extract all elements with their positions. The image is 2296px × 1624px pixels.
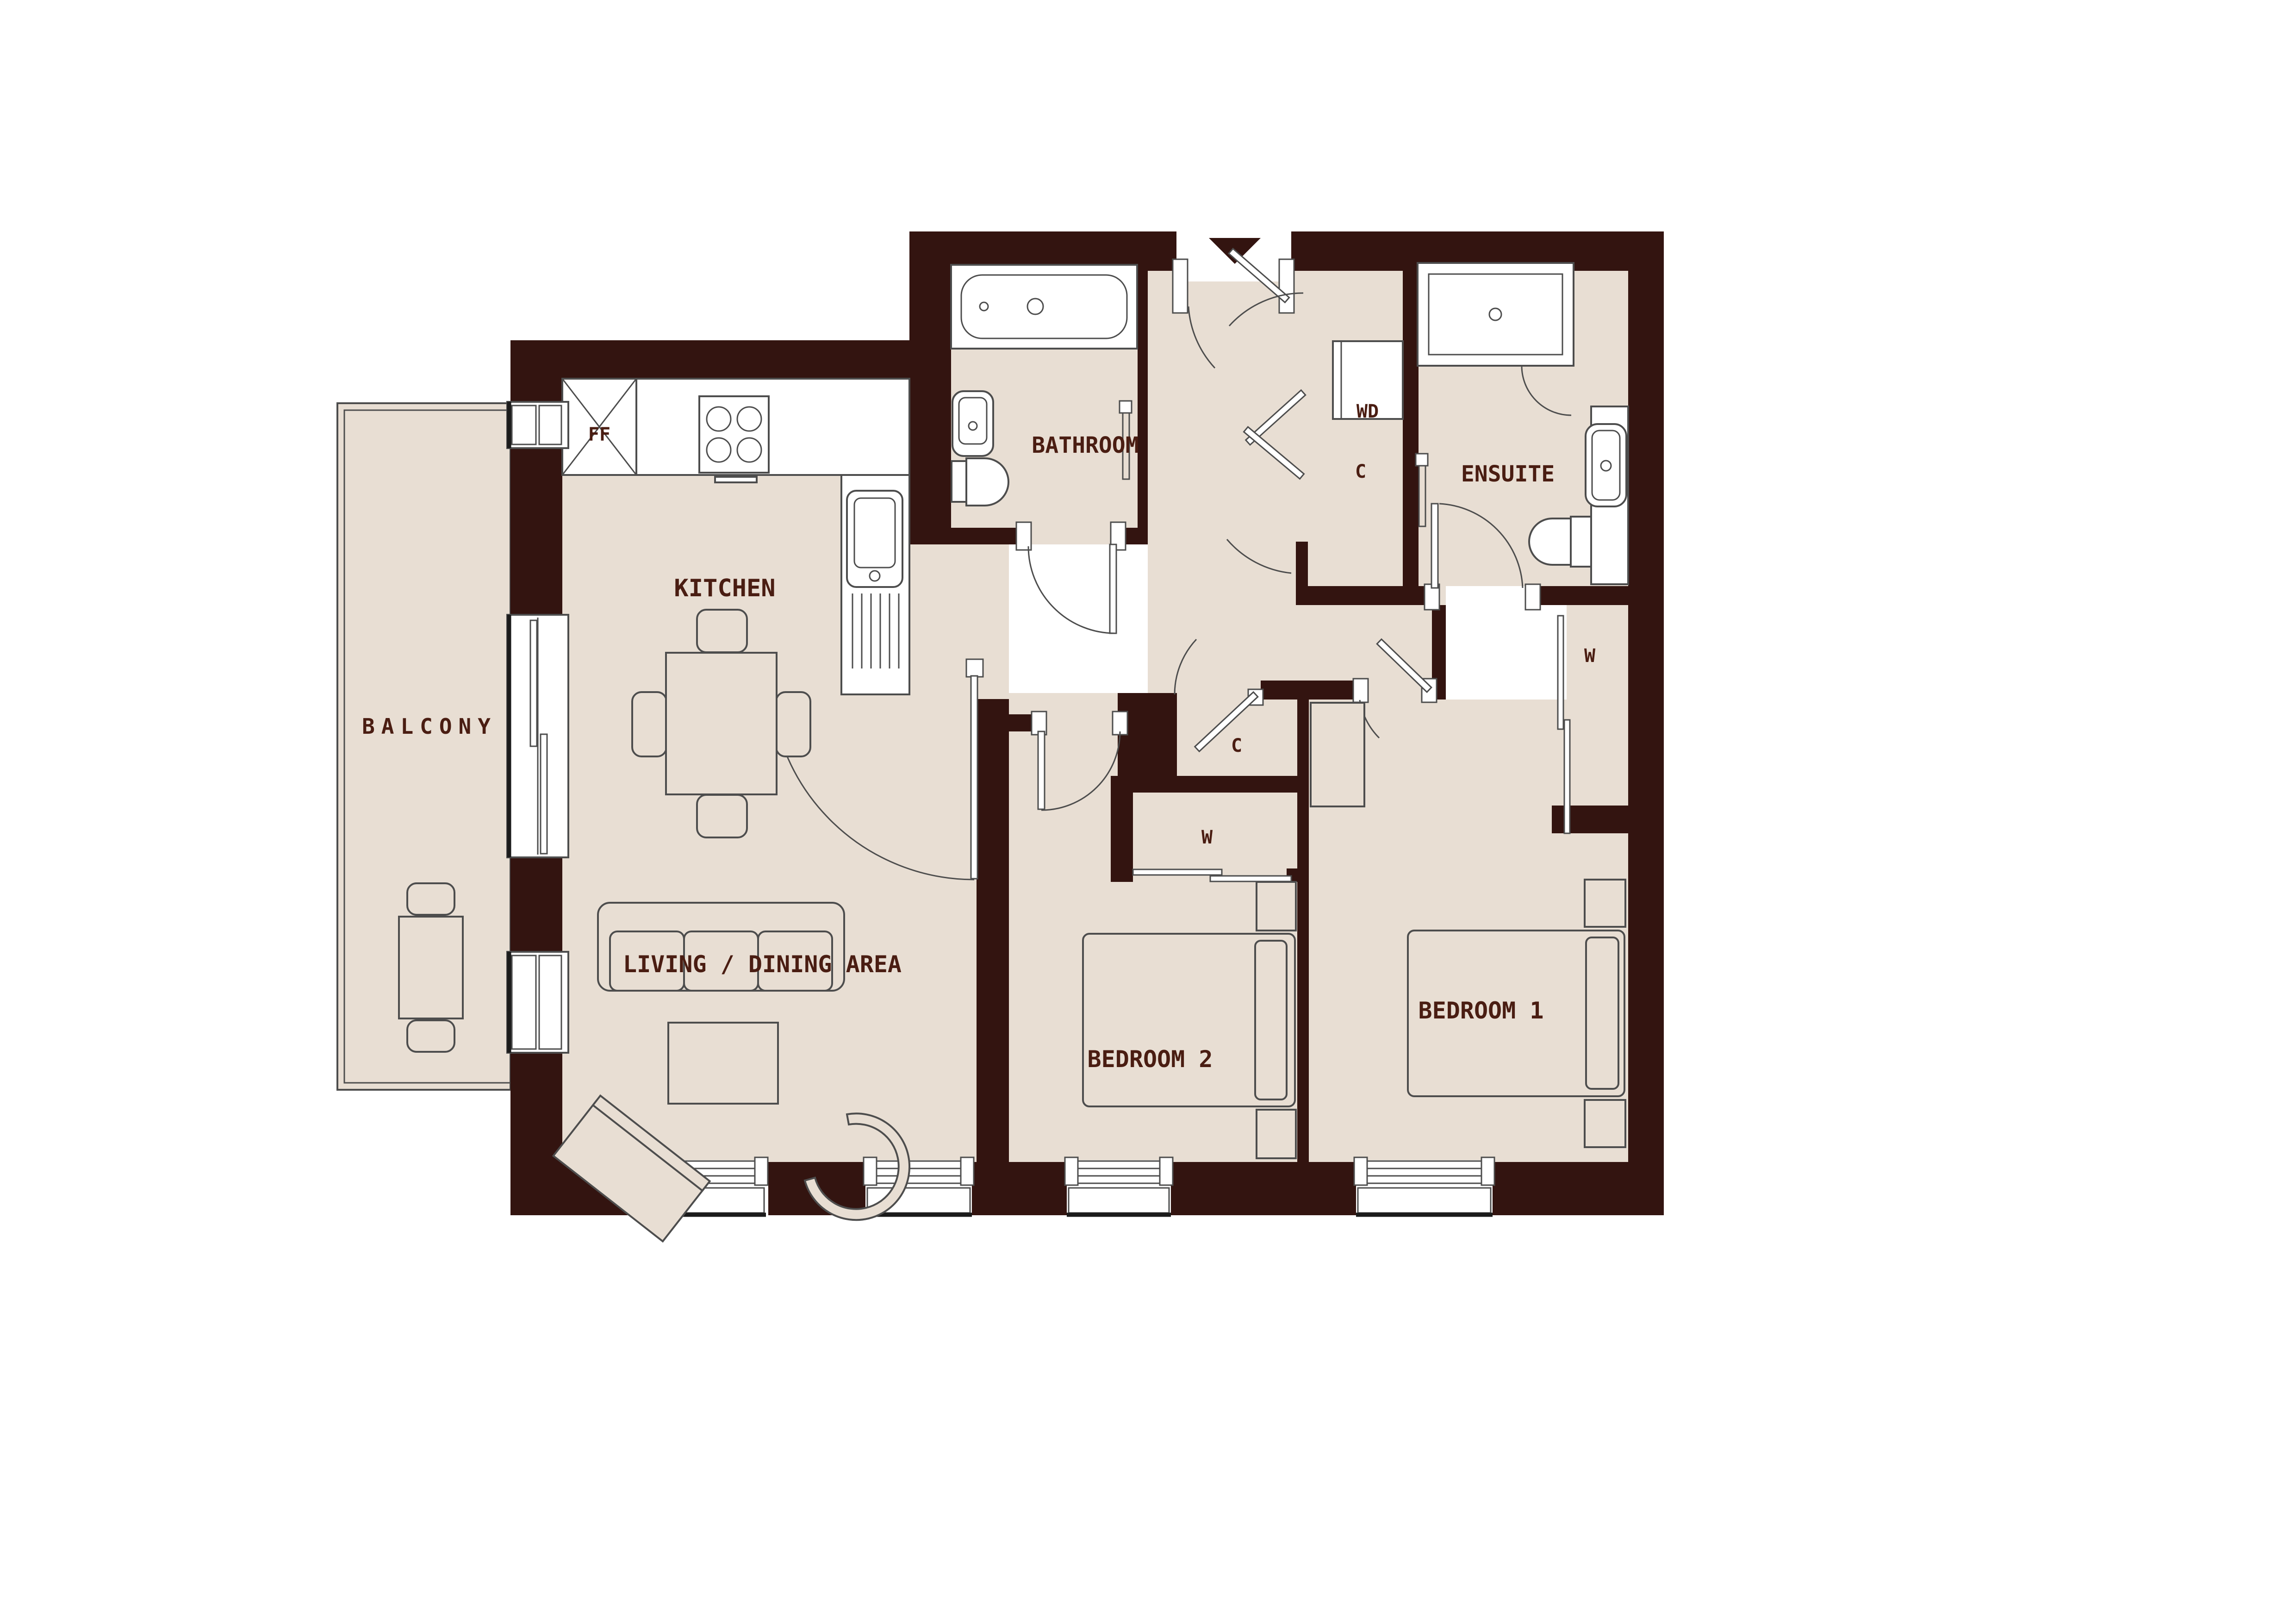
label-bedroom2-wardrobe: W [1201, 827, 1213, 848]
entry-jamb-left [1173, 259, 1188, 313]
bedroom1-dresser [1311, 703, 1364, 806]
dining-chair-north [697, 610, 747, 652]
floor-plan-page: FF KITCHEN BATHROOM ENSUITE WD C C W W B… [0, 0, 2296, 1624]
bedroom2-pillow [1255, 941, 1287, 1099]
kitchen-bathroom-wall [909, 231, 951, 544]
kitchen-top-wall [510, 340, 909, 380]
wardrobe2-slider-left [1133, 869, 1222, 875]
window-bedroom2 [1065, 1157, 1173, 1215]
kitchen-counter-north [636, 379, 909, 475]
label-washer-dryer: WD [1356, 401, 1379, 422]
bedroom2-north-wall [977, 714, 1039, 731]
balcony-chair-south [407, 1020, 454, 1052]
bathroom-door-leaf [1110, 544, 1116, 633]
bathtub [951, 265, 1137, 349]
ensuite-toilet [1529, 517, 1591, 567]
bathroom-toilet [952, 458, 1008, 506]
ensuite-south-wall [1296, 586, 1432, 605]
east-wall [1628, 231, 1664, 1215]
ensuite-door-leaf [1431, 504, 1438, 588]
ensuite-jamb-right [1525, 584, 1540, 610]
label-living-dining: LIVING / DINING AREA [623, 951, 902, 978]
bedroom1-pillow [1586, 937, 1618, 1089]
balcony-table [399, 917, 463, 1018]
bathroom-south-wall [909, 528, 1025, 544]
wardrobe2-slider-right [1210, 876, 1291, 881]
south-wall-seg5 [1493, 1162, 1664, 1215]
label-hall-closet: C [1355, 461, 1366, 482]
west-wall-seg2 [510, 447, 562, 616]
dining-chair-west [632, 692, 666, 756]
bedroom1-nightstand-bottom [1585, 1100, 1625, 1147]
floor-plan-canvas: FF KITCHEN BATHROOM ENSUITE WD C C W W B… [0, 0, 2296, 1624]
wardrobe1-slider-top [1558, 616, 1563, 729]
wardrobe2-west-wall [1111, 776, 1133, 882]
label-bathroom: BATHROOM [1032, 432, 1139, 458]
bathroom-hall-wall [1138, 271, 1148, 544]
bedroom2-west-wall [977, 699, 1009, 1162]
window-bedroom1 [1354, 1157, 1494, 1215]
label-fridge-freezer: FF [588, 424, 610, 445]
label-bedroom1-wardrobe: W [1584, 645, 1596, 667]
hall-living-jamb [966, 659, 983, 677]
wardrobe1-bottom-wall [1552, 806, 1628, 833]
shower [1418, 263, 1574, 366]
label-bedroom2-closet: C [1231, 735, 1242, 756]
balcony-window-top [507, 402, 568, 448]
bedroom2-nightstand-bottom [1257, 1110, 1296, 1158]
balcony-chair-north [407, 883, 454, 915]
hob [699, 396, 769, 473]
dining-chair-east [776, 692, 810, 756]
south-wall-seg4 [1171, 1162, 1356, 1215]
bedroom2-nightstand-top [1257, 882, 1296, 931]
balcony-sliding-door [507, 615, 568, 857]
bathroom-door-arc [1028, 546, 1115, 633]
bedroom1-jamb-left [1353, 679, 1368, 702]
closet-divider-wall [1118, 776, 1297, 793]
coffee-table [668, 1023, 778, 1104]
wardrobe1-top-wall [1533, 586, 1628, 605]
hall-living-door-leaf [971, 676, 977, 879]
kitchen-sink [847, 491, 902, 587]
label-bedroom1: BEDROOM 1 [1419, 997, 1544, 1024]
label-ensuite: ENSUITE [1461, 461, 1555, 487]
ensuite-west-wall [1403, 271, 1419, 605]
dining-chair-south [697, 795, 747, 837]
label-balcony: BALCONY [362, 714, 497, 739]
bathroom-jamb-left [1016, 522, 1031, 550]
balcony-window-bottom [507, 952, 568, 1053]
hall-pillar [1118, 693, 1177, 779]
entry-jamb-right [1279, 259, 1294, 313]
bedroom2-jamb-right [1113, 712, 1127, 735]
label-bedroom2: BEDROOM 2 [1088, 1046, 1213, 1073]
south-wall-seg3 [972, 1162, 1067, 1215]
dining-table [666, 653, 777, 794]
oven-handle [715, 477, 757, 482]
hall-closet-north-wall [1261, 681, 1297, 700]
wardrobe1-slider-bottom [1564, 720, 1570, 833]
label-kitchen: KITCHEN [674, 575, 775, 602]
bedroom2-door-leaf [1038, 731, 1045, 809]
west-wall-seg4 [510, 1051, 562, 1162]
bedroom1-nightstand-top [1585, 880, 1625, 927]
bedroom-divider-wall [1297, 681, 1309, 1162]
west-wall-seg3 [510, 856, 562, 954]
